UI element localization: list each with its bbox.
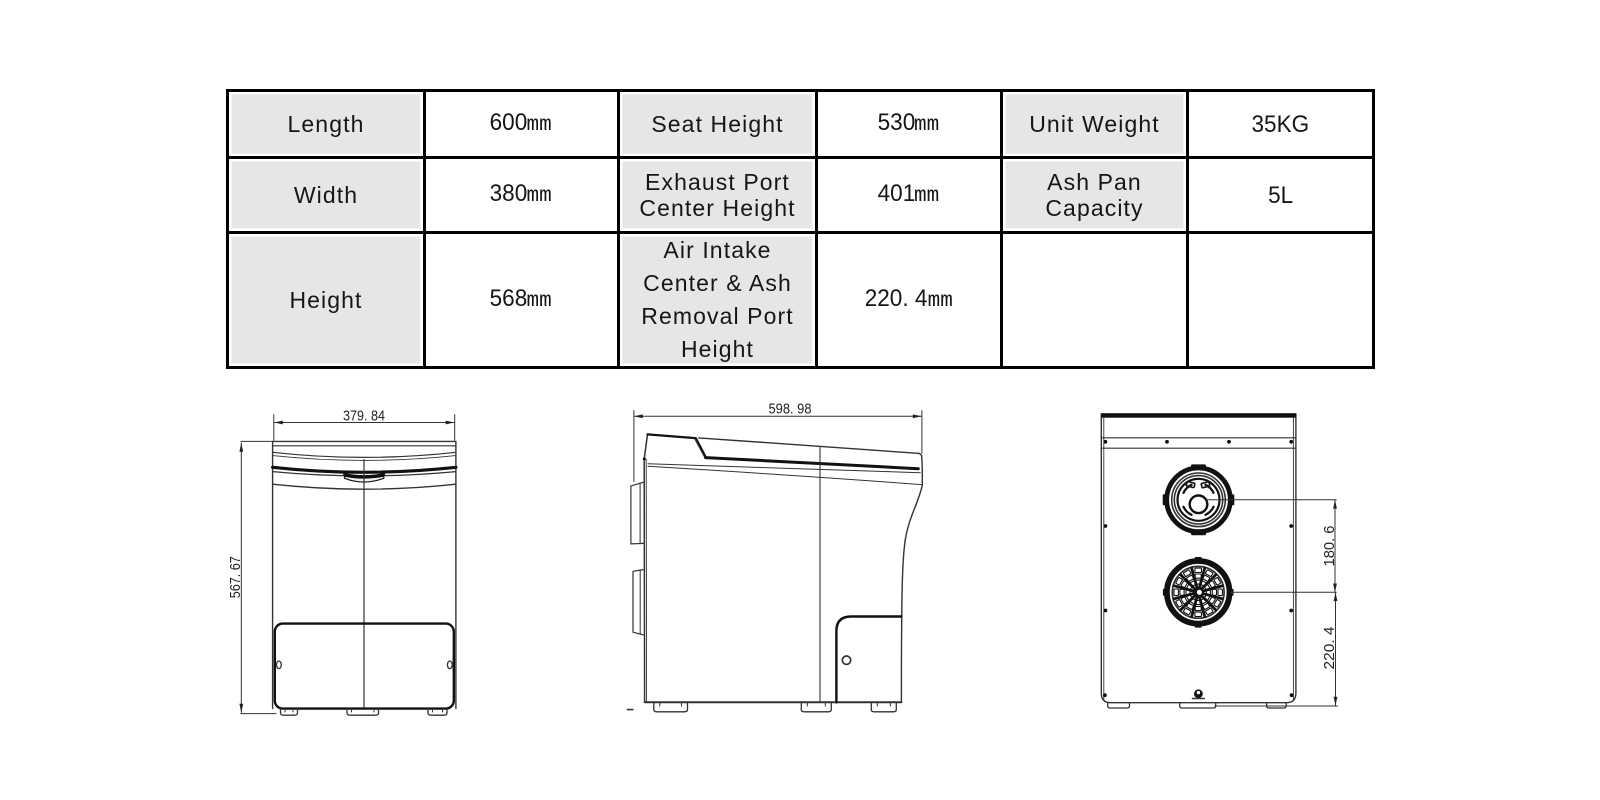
svg-text:220. 4: 220. 4 bbox=[1322, 627, 1338, 670]
svg-text:180. 6: 180. 6 bbox=[1322, 526, 1338, 567]
svg-text:379. 84: 379. 84 bbox=[343, 408, 385, 424]
svg-text:567. 67: 567. 67 bbox=[228, 556, 244, 598]
svg-text:598. 98: 598. 98 bbox=[769, 402, 812, 418]
